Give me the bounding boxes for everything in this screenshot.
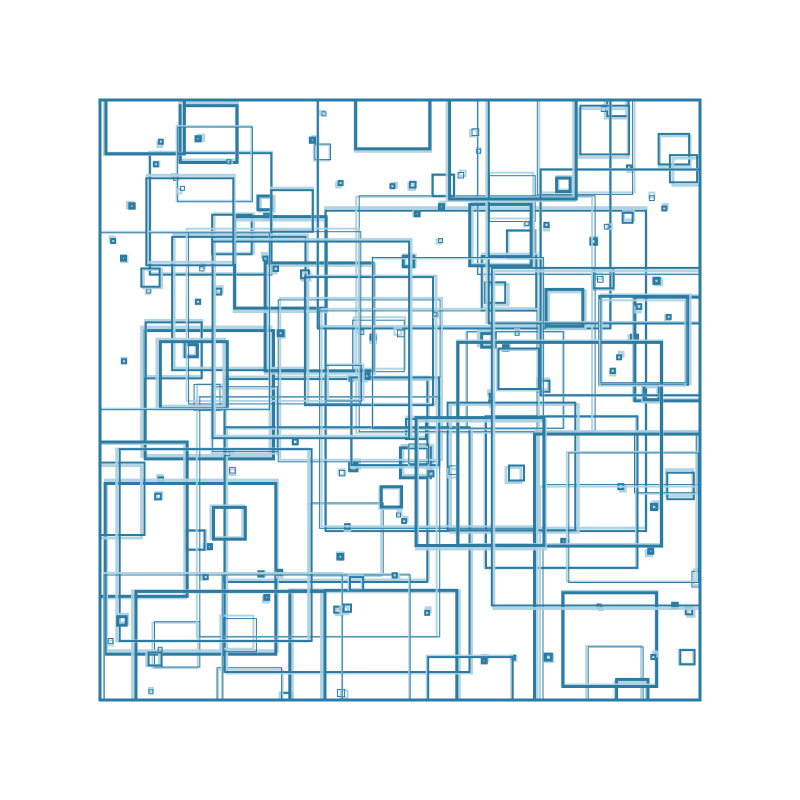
art-stage (0, 0, 800, 800)
artboard (0, 0, 800, 800)
